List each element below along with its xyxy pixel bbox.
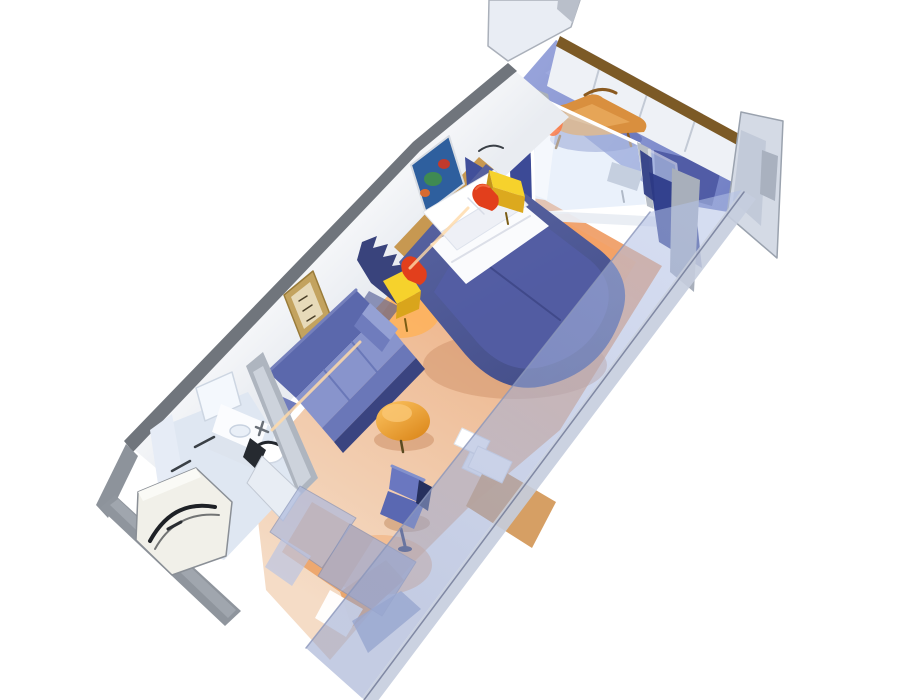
stateroom-3d-floorplan — [0, 0, 900, 700]
artwork-above-bed-red — [438, 159, 450, 169]
artwork-above-bed-green — [424, 172, 442, 186]
vanity-basin — [230, 425, 250, 437]
balcony-divider-right-block — [760, 150, 778, 201]
stateroom-render-canvas — [0, 0, 900, 700]
artwork-above-bed-orange — [420, 189, 430, 197]
ottoman-highlight — [382, 404, 412, 422]
